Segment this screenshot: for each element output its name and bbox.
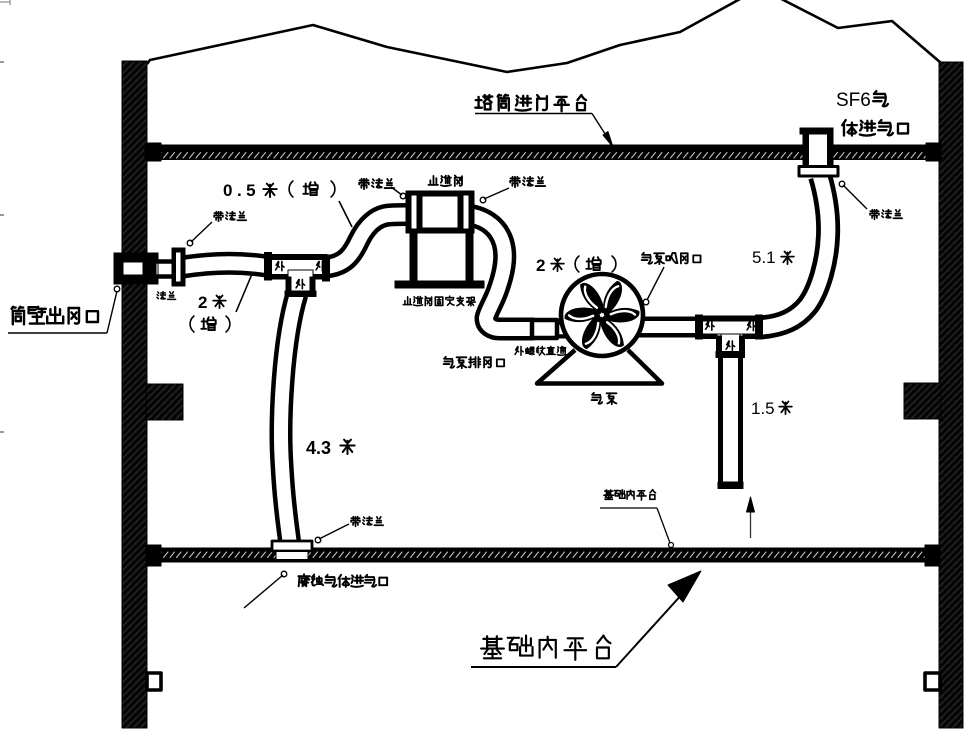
svg-text:0.5: 0.5 xyxy=(223,181,260,200)
svg-text:1.5: 1.5 xyxy=(751,399,775,418)
svg-text:SF6: SF6 xyxy=(836,90,871,111)
svg-text:2: 2 xyxy=(536,256,545,275)
svg-text:5.1: 5.1 xyxy=(752,248,776,267)
svg-text:2: 2 xyxy=(198,293,207,312)
svg-text:4.3: 4.3 xyxy=(306,438,331,458)
